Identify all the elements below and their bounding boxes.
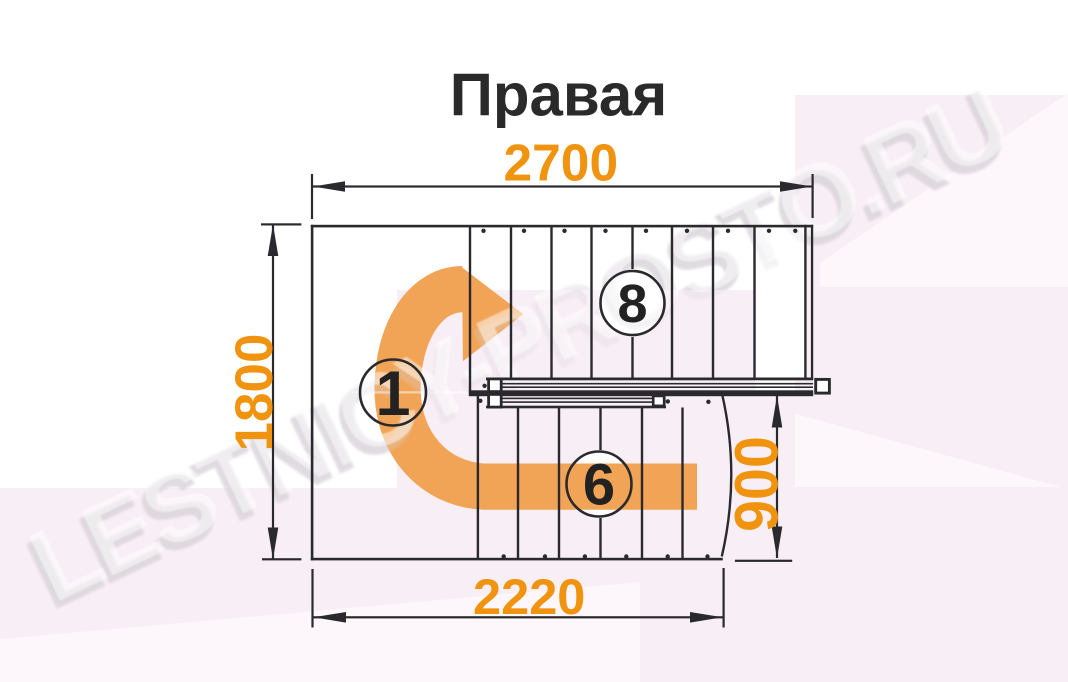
svg-text:8: 8 [617, 274, 647, 334]
svg-text:900: 900 [722, 436, 791, 532]
svg-text:2220: 2220 [473, 568, 585, 625]
svg-text:Правая: Правая [450, 61, 668, 128]
svg-text:1: 1 [375, 359, 410, 429]
svg-text:1800: 1800 [225, 334, 284, 452]
svg-text:6: 6 [583, 453, 615, 518]
svg-text:2700: 2700 [504, 134, 619, 192]
